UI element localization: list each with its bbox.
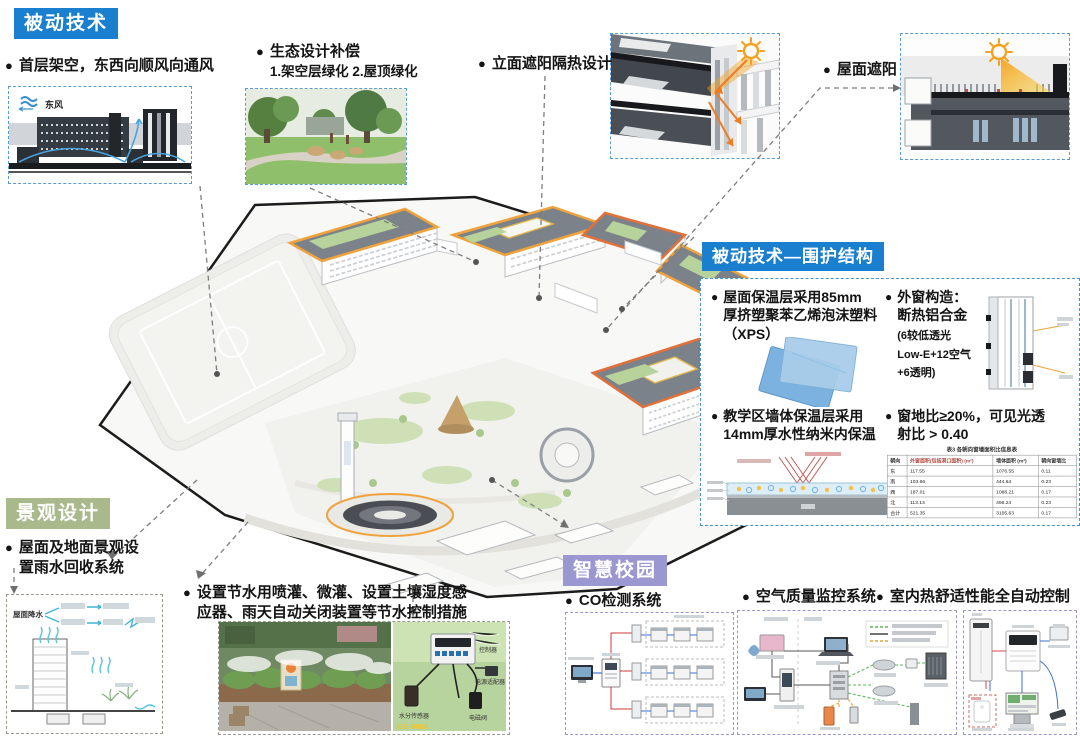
bullet-icon: ●	[478, 54, 486, 74]
section-header-smart: 智慧校园	[563, 555, 667, 586]
monitor-icon	[571, 665, 593, 683]
bullet-icon: ●	[823, 60, 831, 80]
svg-text:电磁阀: 电磁阀	[469, 714, 487, 722]
label-air-quality-system: ● 空气质量监控系统	[742, 587, 876, 607]
co-detection-diagram	[565, 612, 734, 735]
bullet-icon: ●	[256, 42, 264, 81]
clock-tower	[338, 413, 357, 507]
svg-text:电源适配器: 电源适配器	[475, 678, 505, 686]
envelope-item-roof-insulation: ● 屋面保温层采用85mm厚挤塑聚苯乙烯泡沫塑料（XPS）	[711, 288, 883, 343]
bullet-icon: ●	[183, 583, 191, 622]
xps-foam-image	[746, 337, 871, 407]
label-facade-shading: ● 立面遮阳隔热设计	[478, 54, 612, 74]
table-header: 外窗面积(包括洞口面积) (m²)	[907, 455, 993, 465]
label-water-saving: ● 设置节水用喷灌、微灌、设置土壤湿度感应器、雨天自动关闭装置等节水控制措施	[183, 583, 467, 622]
label-eco-compensation: ● 生态设计补偿 1.架空层绿化 2.屋顶绿化	[256, 42, 418, 81]
svg-text:屋面降水: 屋面降水	[13, 609, 43, 619]
svg-text:水分传感器: 水分传感器	[399, 712, 429, 720]
table-row: 南103.66444.640.23	[887, 476, 1076, 486]
co-branch-rows	[632, 621, 724, 723]
window-section-image	[973, 295, 1075, 395]
round-building	[541, 429, 593, 481]
envelope-item-wall-insulation: ● 教学区墙体保温层采用14mm厚水性纳米内保温	[711, 407, 886, 444]
soil-sensor-photo: 控制器 电源适配器 水分传感器 电磁阀 GG-008A	[393, 622, 506, 731]
facade-shading-diagram	[610, 33, 780, 159]
oval-track-feature	[327, 494, 453, 536]
svg-text:控制器: 控制器	[479, 646, 497, 654]
label-co-system: ● CO检测系统	[565, 591, 661, 611]
bullet-icon: ●	[876, 587, 884, 607]
table-title: 表3 各朝向窗墙面积比信息表	[887, 445, 1077, 453]
envelope-panel: ● 屋面保温层采用85mm厚挤塑聚苯乙烯泡沫塑料（XPS） ● 外窗构造：断热铝…	[700, 278, 1080, 526]
irrigation-photos: 控制器 电源适配器 水分传感器 电磁阀 GG-008A	[218, 621, 510, 735]
wall-insulation-section	[707, 451, 907, 517]
table-row: 西187.011088.210.17	[887, 487, 1076, 497]
stilt-ventilation-diagram: 东风	[8, 86, 192, 184]
envelope-item-window-ratio: ● 窗地比≥20%，可见光透射比 > 0.40	[885, 407, 1070, 444]
window-wall-ratio-table: 表3 各朝向窗墙面积比信息表 朝向 外窗面积(包括洞口面积) (m²) 墙体面积…	[887, 445, 1077, 518]
table-row: 东117.551076.550.11	[887, 466, 1076, 476]
table-row: 合计521.353105.630.17	[887, 507, 1076, 517]
table-row: 北113.13496.240.23	[887, 497, 1076, 507]
envelope-item-window: ● 外窗构造：断热铝合金 (6较低透光Low-E+12空气+6透明)	[885, 288, 985, 381]
label-roof-shading: ● 屋面遮阳	[823, 60, 897, 80]
label-stilt-ventilation: ● 首层架空，东西向顺风向通风	[5, 56, 214, 76]
rainwater-diagram: 屋面降水	[6, 594, 163, 734]
section-header-passive: 被动技术	[14, 8, 118, 39]
bullet-icon: ●	[565, 591, 573, 611]
label-thermal-comfort: ● 室内热舒适性能全自动控制	[876, 587, 1070, 607]
bullet-icon: ●	[5, 538, 13, 577]
eco-greenery-photo	[245, 88, 407, 185]
misting-garden-photo	[219, 622, 393, 731]
svg-text:GG-008A: GG-008A	[397, 722, 430, 731]
table-header: 朝向窗墙比	[1038, 455, 1076, 465]
thermal-comfort-diagram	[963, 610, 1077, 735]
laptop-icon	[818, 637, 854, 656]
table-header: 朝向	[887, 455, 907, 465]
svg-text:东风: 东风	[45, 99, 63, 110]
infographic-slide: 被动技术 被动技术—围护结构 景观设计 智慧校园 ● 首层架空，东西向顺风向通风…	[0, 0, 1080, 740]
bullet-icon: ●	[742, 587, 750, 607]
label-rainwater-recycle: ● 屋面及地面景观设置雨水回收系统	[5, 538, 139, 577]
legend	[866, 621, 948, 647]
wind-icon	[19, 97, 37, 111]
air-quality-diagram	[737, 610, 957, 735]
table-header: 墙体面积 (m²)	[993, 455, 1038, 465]
section-header-landscape: 景观设计	[6, 498, 110, 529]
bullet-icon: ●	[5, 56, 13, 76]
monitor-robot-icon	[1006, 693, 1038, 728]
section-header-envelope: 被动技术—围护结构	[702, 242, 884, 271]
roof-shading-diagram	[900, 33, 1070, 160]
